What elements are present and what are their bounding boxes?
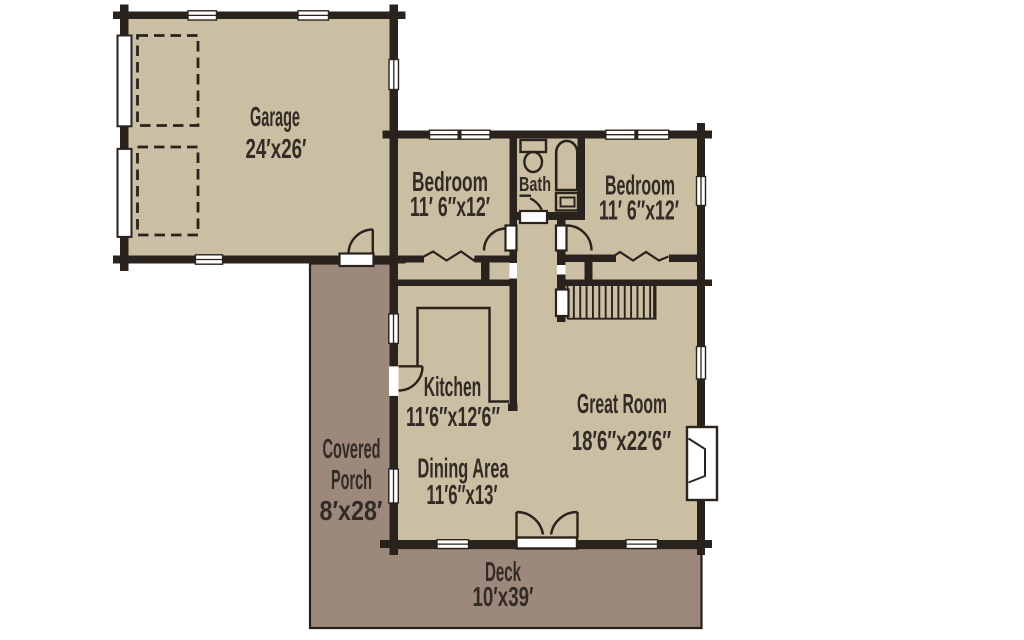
svg-text:Covered: Covered (323, 433, 381, 464)
svg-text:Great Room: Great Room (577, 388, 667, 419)
svg-text:Kitchen: Kitchen (424, 371, 482, 402)
svg-text:8′x28′: 8′x28′ (320, 495, 383, 526)
svg-text:11′ 6″x12′: 11′ 6″x12′ (599, 195, 679, 226)
svg-text:10′x39′: 10′x39′ (473, 581, 534, 612)
svg-text:24′x26′: 24′x26′ (246, 133, 307, 164)
svg-text:11′ 6″x12′: 11′ 6″x12′ (410, 191, 490, 222)
svg-text:11′6″x12′6″: 11′6″x12′6″ (406, 401, 500, 432)
svg-text:11′6″x13′: 11′6″x13′ (427, 479, 498, 510)
svg-text:Garage: Garage (250, 101, 300, 132)
svg-text:18′6″x22′6″: 18′6″x22′6″ (572, 425, 672, 456)
svg-text:Bath: Bath (519, 173, 551, 196)
svg-text:Porch: Porch (331, 464, 372, 495)
